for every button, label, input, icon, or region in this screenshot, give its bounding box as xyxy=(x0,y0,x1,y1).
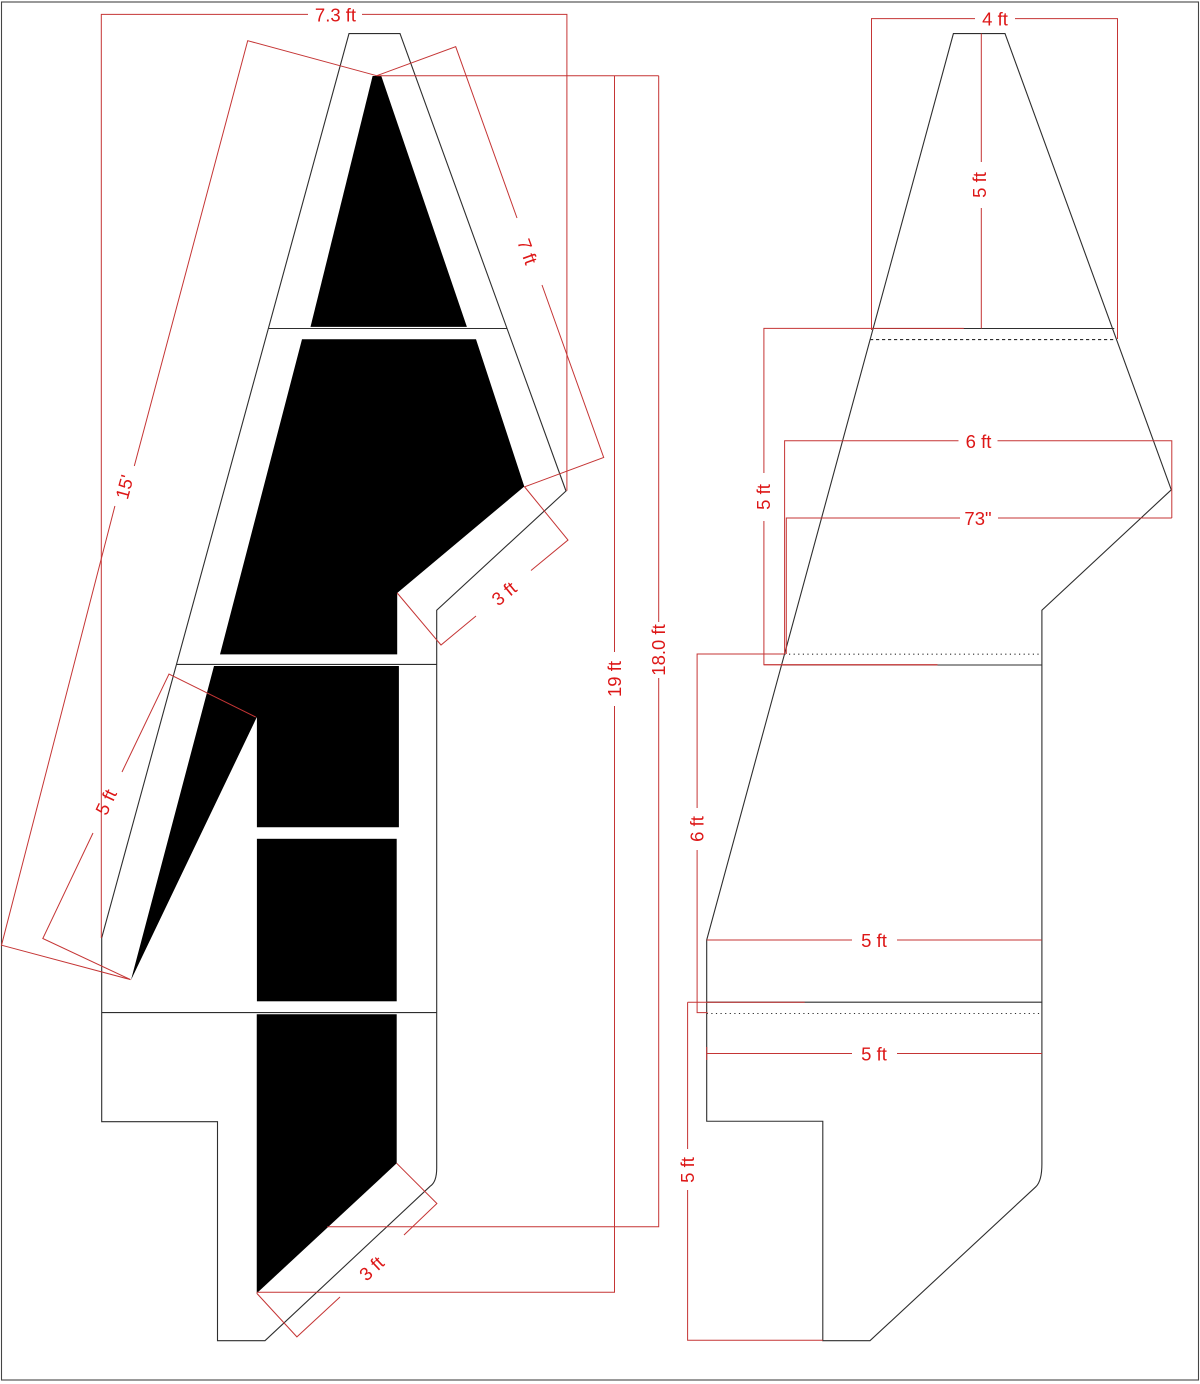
svg-text:4 ft: 4 ft xyxy=(982,9,1008,30)
svg-text:5 ft: 5 ft xyxy=(969,172,990,198)
svg-text:19 ft: 19 ft xyxy=(604,661,625,697)
svg-text:5 ft: 5 ft xyxy=(753,484,774,510)
svg-text:5 ft: 5 ft xyxy=(861,1044,887,1065)
svg-text:5 ft: 5 ft xyxy=(861,930,887,951)
svg-text:73": 73" xyxy=(964,508,991,529)
svg-text:6 ft: 6 ft xyxy=(966,431,992,452)
svg-text:7.3 ft: 7.3 ft xyxy=(315,5,356,26)
svg-text:6 ft: 6 ft xyxy=(687,816,708,842)
svg-text:18.0 ft: 18.0 ft xyxy=(648,624,669,675)
svg-text:5 ft: 5 ft xyxy=(677,1157,698,1183)
